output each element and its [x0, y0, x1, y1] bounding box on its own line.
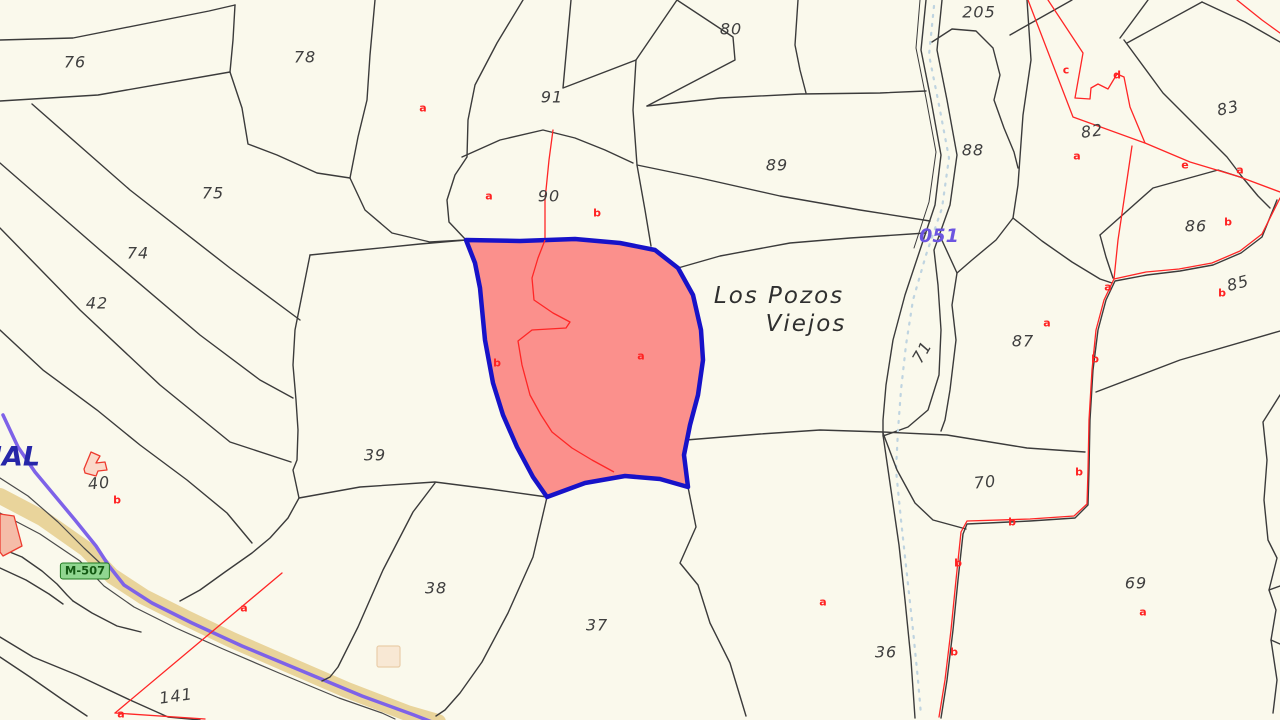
- stream-bank-right: [883, 0, 957, 436]
- stream-center-dotted: [896, 6, 949, 715]
- stream-bank-left: [883, 0, 941, 718]
- highlighted-parcel-group: [466, 239, 703, 497]
- building: [0, 514, 22, 556]
- road-layer: [0, 415, 438, 720]
- building-layer: [0, 452, 400, 667]
- stream-layer: [883, 0, 957, 718]
- cadastral-map-viewport[interactable]: 7678918020589889082838685877170693637383…: [0, 0, 1280, 720]
- route-purple-line: [3, 415, 432, 720]
- highlighted-parcel[interactable]: [466, 239, 703, 497]
- building: [84, 452, 107, 476]
- map-canvas[interactable]: [0, 0, 1280, 720]
- building: [377, 646, 400, 667]
